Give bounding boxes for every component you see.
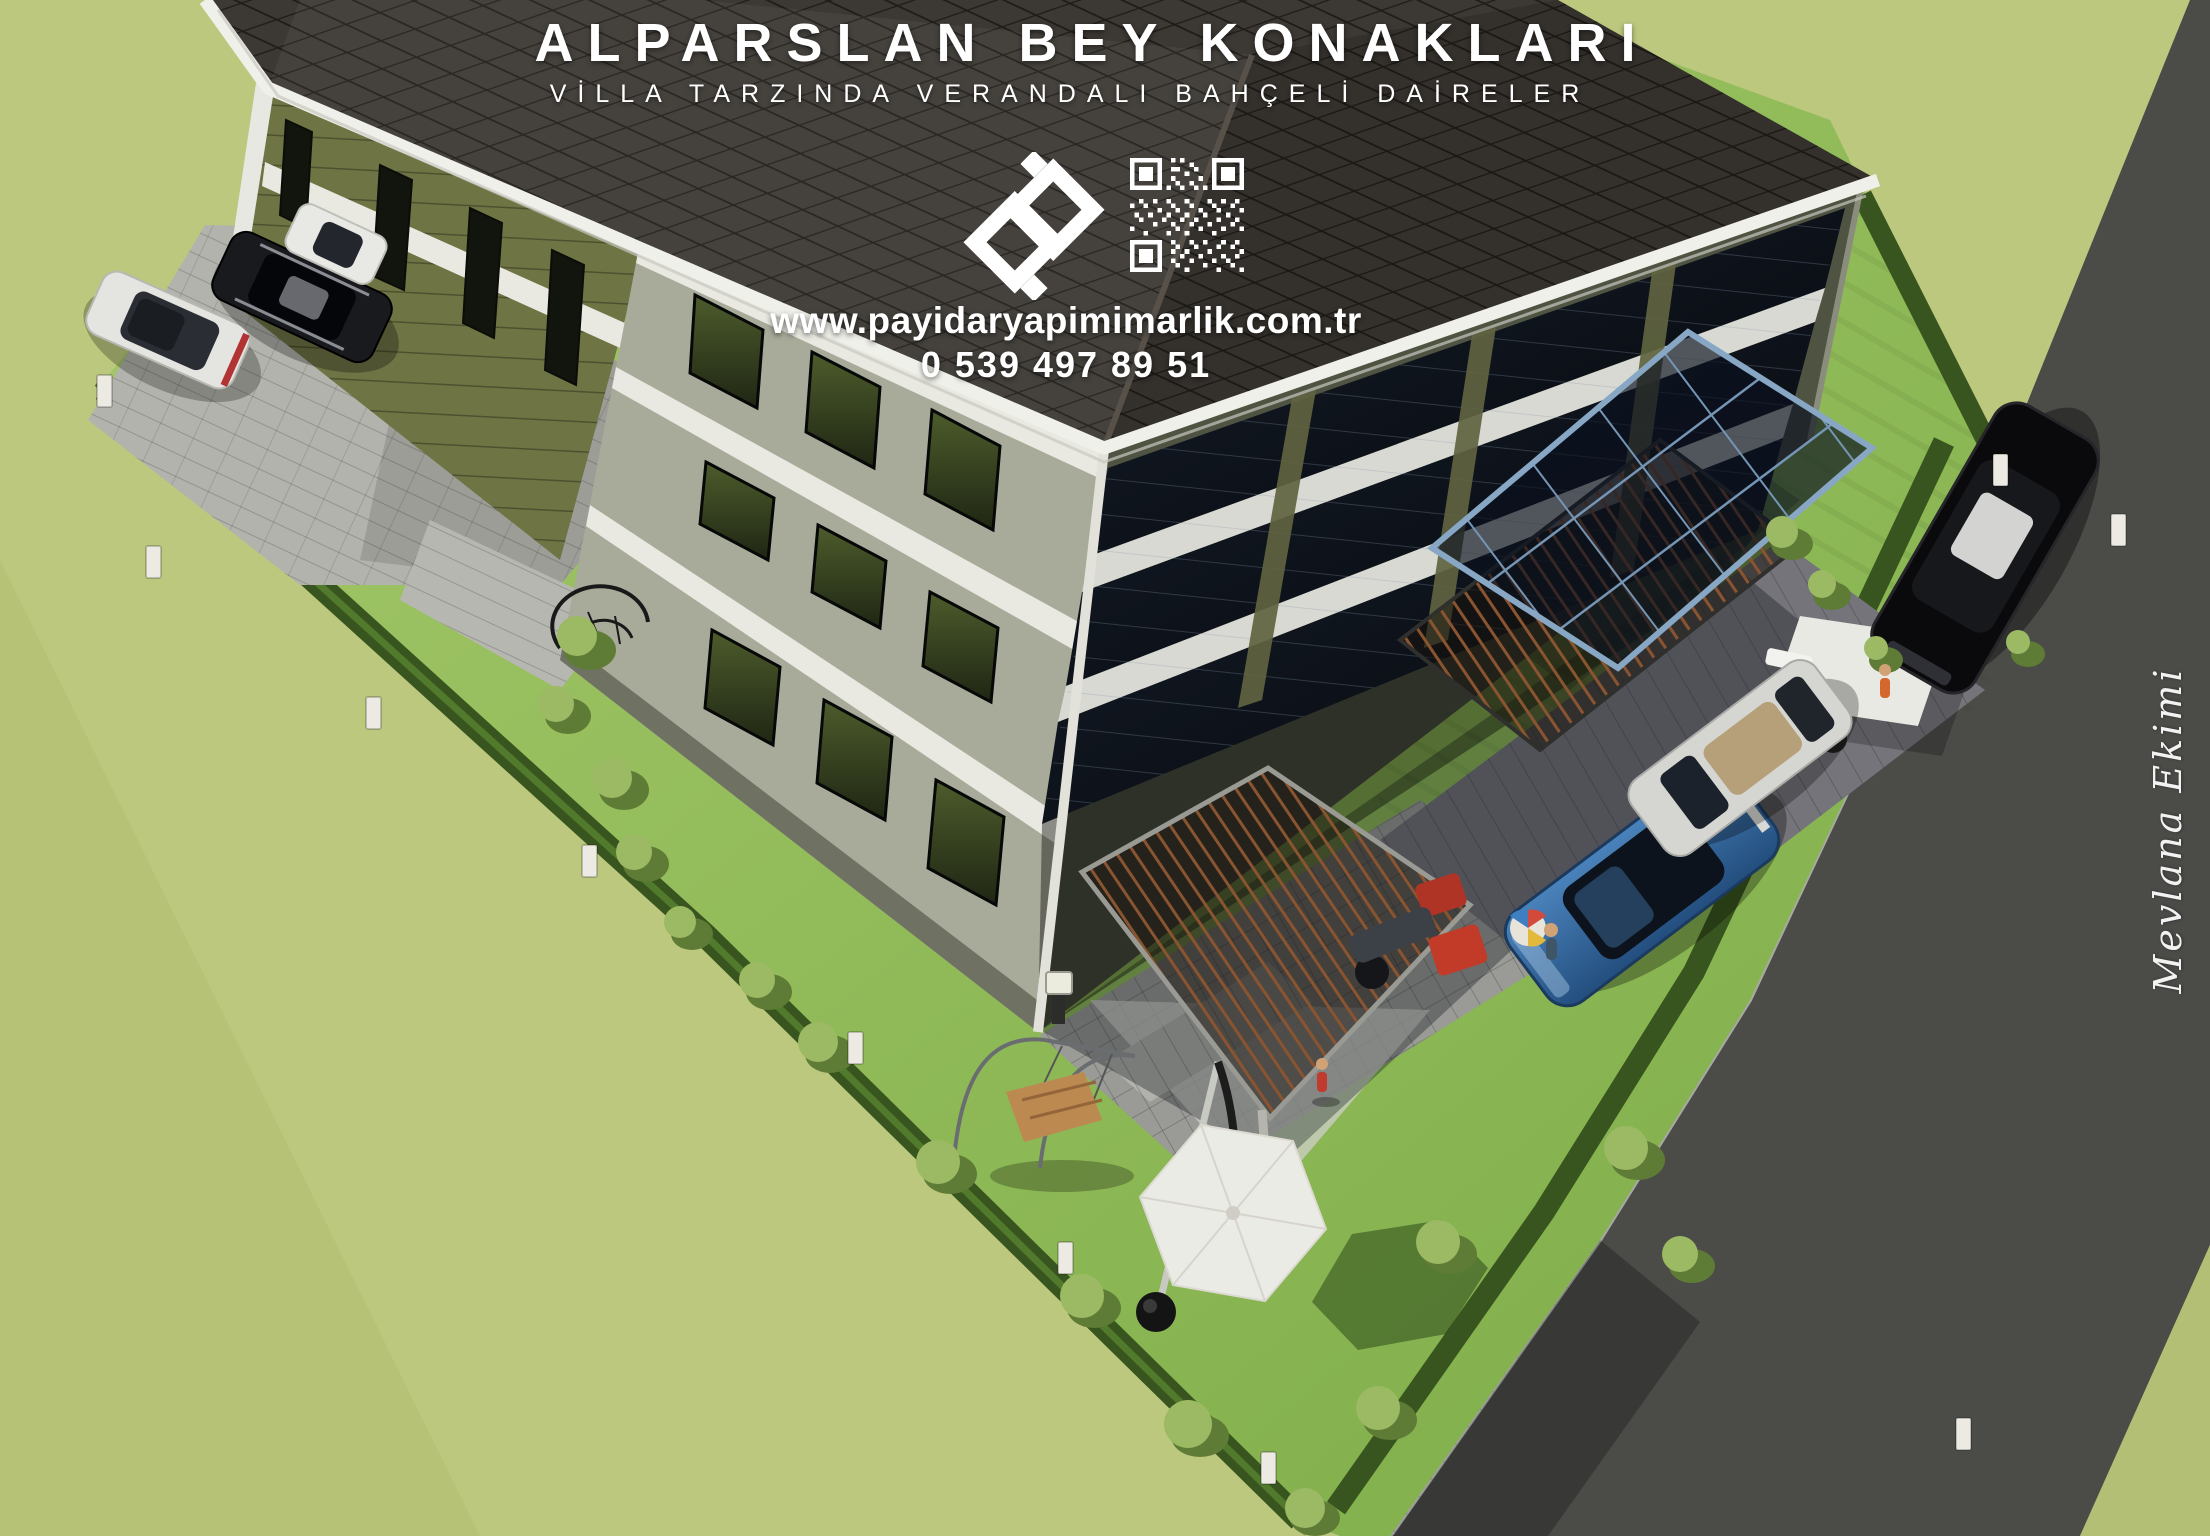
- brand-block: [958, 148, 1298, 308]
- project-title: ALPARSLAN BEY KONAKLARI: [534, 12, 1649, 74]
- phone-number: 0 539 497 89 51: [921, 344, 1211, 386]
- artist-signature: Mevlana Ekimi: [2146, 667, 2190, 994]
- person-at-loungers: [1879, 664, 1891, 698]
- qr-code-icon: [1128, 158, 1246, 272]
- project-subtitle: VİLLA TARZINDA VERANDALI BAHÇELİ DAİRELE…: [550, 80, 1591, 109]
- architectural-render-poster: ALPARSLAN BEY KONAKLARI VİLLA TARZINDA V…: [0, 0, 2210, 1536]
- payidar-logo-icon: [958, 152, 1110, 300]
- website-url: www.payidaryapimimarlik.com.tr: [770, 300, 1361, 342]
